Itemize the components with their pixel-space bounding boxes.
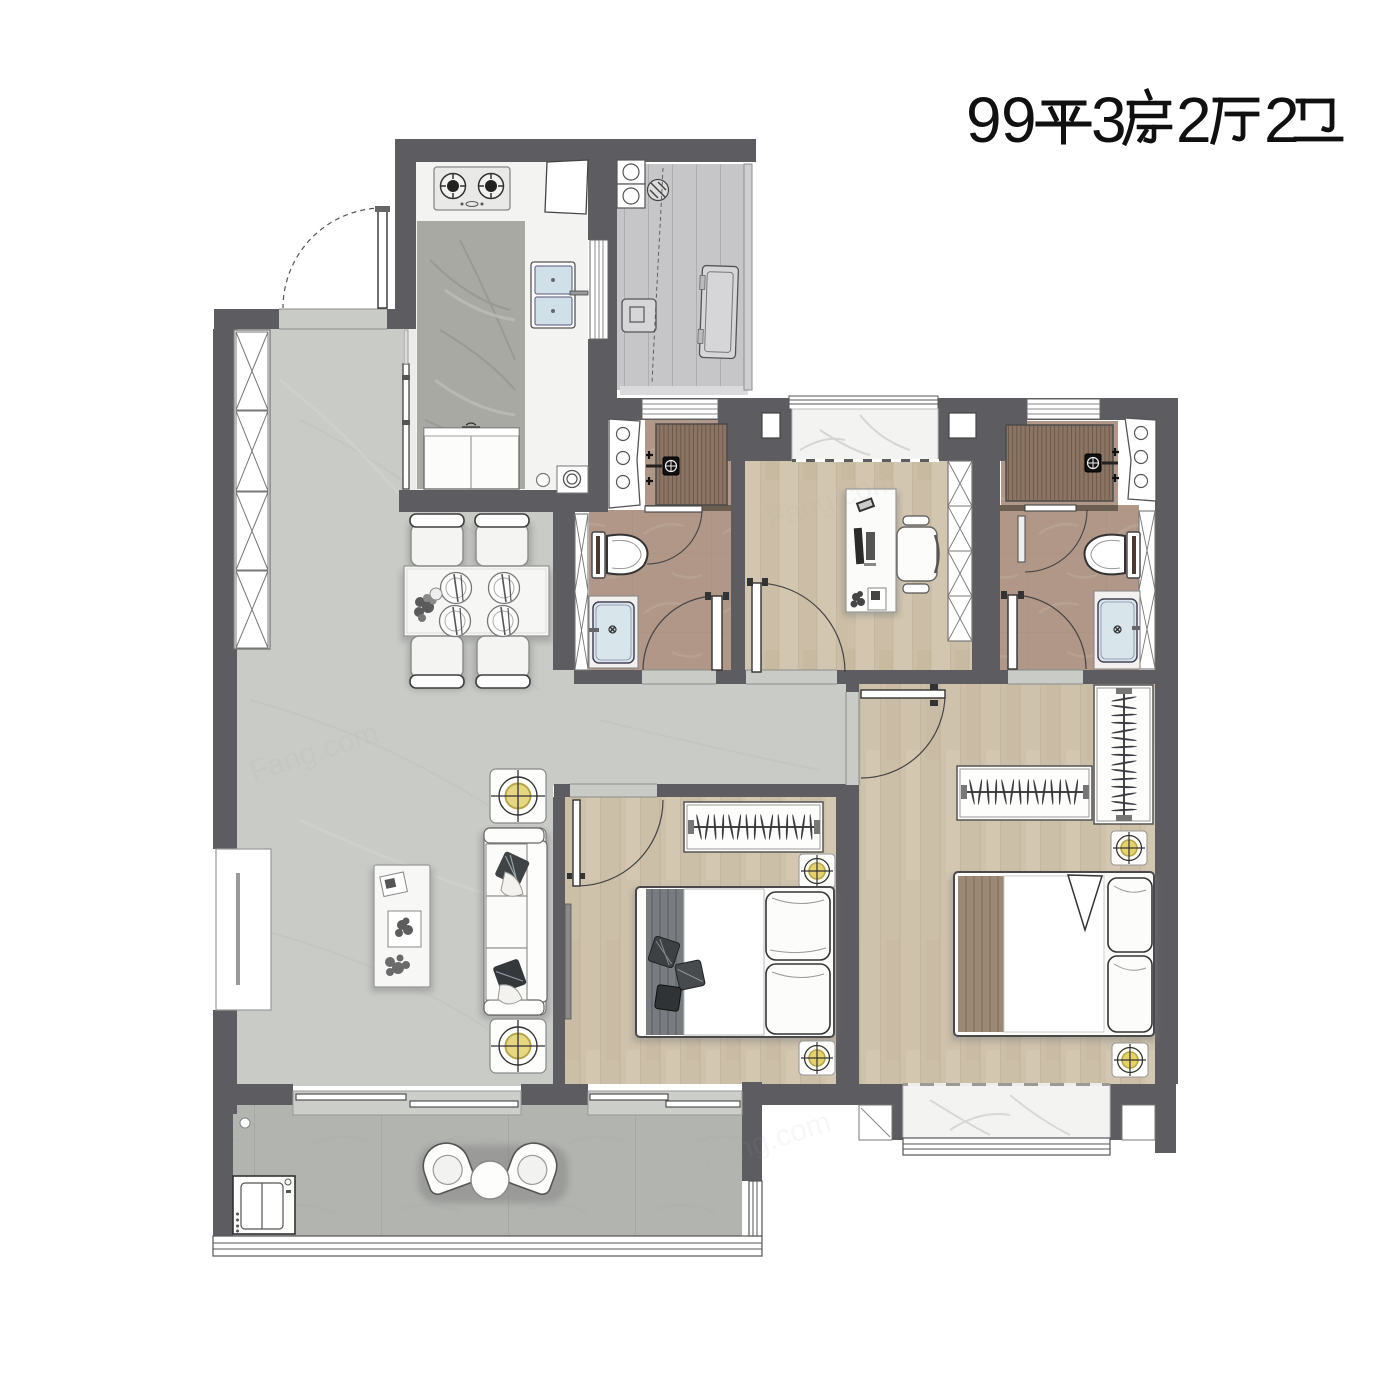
svg-text:2: 2 (1176, 84, 1212, 156)
svg-text:9: 9 (966, 84, 1002, 156)
svg-text:3: 3 (1091, 84, 1127, 156)
svg-text:2: 2 (1264, 84, 1300, 156)
svg-text:9: 9 (1001, 84, 1037, 156)
